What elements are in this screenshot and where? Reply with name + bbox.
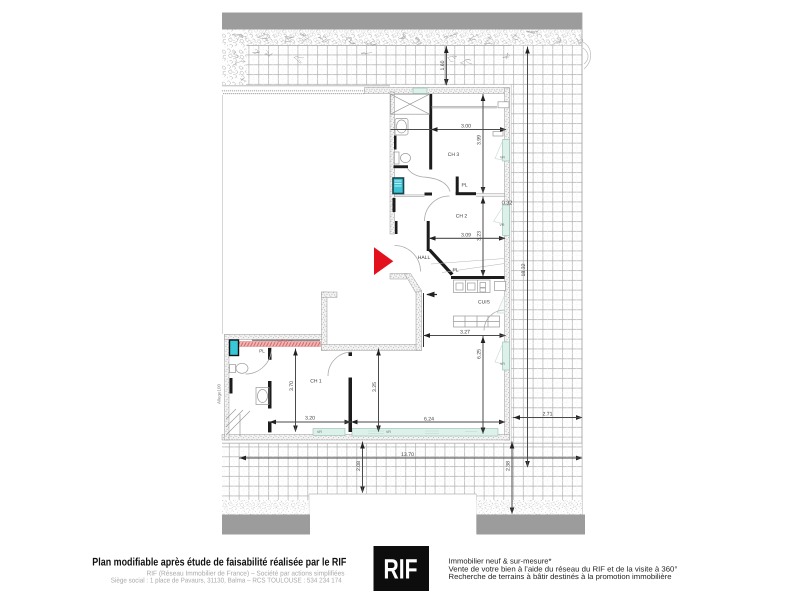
svg-text:PL: PL [259, 349, 265, 354]
svg-text:Allege100: Allege100 [217, 383, 222, 404]
svg-text:2.71: 2.71 [542, 412, 552, 418]
svg-text:2.08: 2.08 [356, 461, 362, 471]
svg-text:3.00: 3.00 [461, 124, 471, 130]
svg-text:RIF: RIF [384, 554, 418, 585]
svg-text:6.24: 6.24 [424, 417, 434, 423]
svg-text:CH 2: CH 2 [456, 214, 468, 220]
svg-text:CUIS: CUIS [478, 300, 491, 306]
svg-text:RIF (Réseau Immobilier de Fran: RIF (Réseau Immobilier de France) – Soci… [147, 569, 345, 577]
svg-text:HALL: HALL [418, 255, 431, 261]
svg-text:PL: PL [452, 268, 458, 274]
svg-text:CH 3: CH 3 [448, 152, 460, 158]
svg-text:13.70: 13.70 [401, 452, 414, 458]
svg-text:1.60: 1.60 [440, 60, 446, 70]
svg-text:18.32: 18.32 [521, 263, 527, 276]
svg-text:suPla ~~: suPla ~~ [277, 338, 293, 343]
svg-text:CH 1: CH 1 [310, 379, 322, 385]
svg-text:3.23: 3.23 [477, 231, 483, 241]
svg-text:0.32: 0.32 [502, 201, 513, 207]
svg-text:VR: VR [317, 430, 322, 434]
svg-text:Recherche de terrains à bâtir: Recherche de terrains à bâtir destinés à… [449, 572, 672, 581]
svg-text:3.99: 3.99 [477, 135, 483, 145]
svg-text:VR: VR [500, 156, 505, 160]
svg-text:PL: PL [461, 183, 467, 189]
svg-text:3.25: 3.25 [372, 382, 378, 392]
svg-text:Plan modifiable après étude de: Plan modifiable après étude de faisabili… [92, 557, 346, 569]
svg-text:VR: VR [500, 362, 505, 366]
svg-text:6.25: 6.25 [477, 349, 483, 359]
svg-text:3.09: 3.09 [461, 232, 471, 238]
svg-text:3.70: 3.70 [289, 381, 295, 391]
svg-text:3.20: 3.20 [305, 416, 315, 422]
svg-text:VR: VR [500, 223, 505, 227]
svg-text:VR: VR [386, 430, 391, 434]
svg-text:2.38: 2.38 [506, 461, 512, 471]
svg-text:Siège social : 1 place de Pava: Siège social : 1 place de Pavaurs, 31130… [111, 576, 342, 584]
